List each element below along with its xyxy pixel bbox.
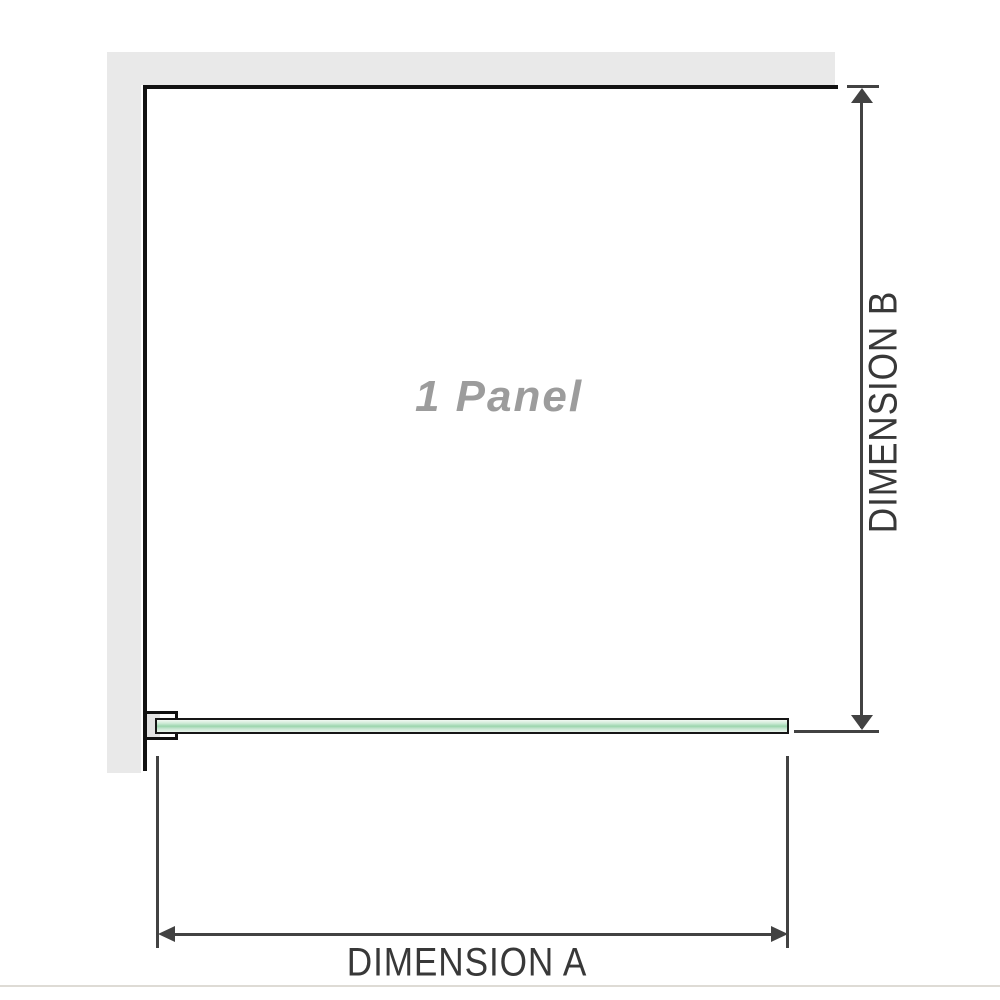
- wall-left-segment: [107, 52, 141, 773]
- panel-dimension-diagram: 1 Panel DIMENSION B DIMENSION A: [0, 0, 1000, 1000]
- dimension-a-line: [166, 933, 780, 936]
- dimension-a-left-extension-line: [156, 756, 159, 948]
- dimension-a-label: DIMENSION A: [347, 941, 587, 986]
- image-bottom-divider: [0, 985, 1000, 987]
- arrow-right-icon: [771, 926, 788, 942]
- panel-outline-top-edge: [143, 85, 838, 89]
- dimension-a-right-extension-line: [786, 756, 789, 948]
- dimension-b-bottom-tick: [794, 730, 879, 733]
- wall-top-segment: [107, 52, 835, 85]
- panel-outline-left-edge: [143, 85, 147, 771]
- arrow-down-icon: [851, 715, 873, 730]
- panel-count-label: 1 Panel: [415, 372, 583, 422]
- glass-panel-bar: [155, 718, 789, 734]
- dimension-b-label: DIMENSION B: [862, 291, 907, 533]
